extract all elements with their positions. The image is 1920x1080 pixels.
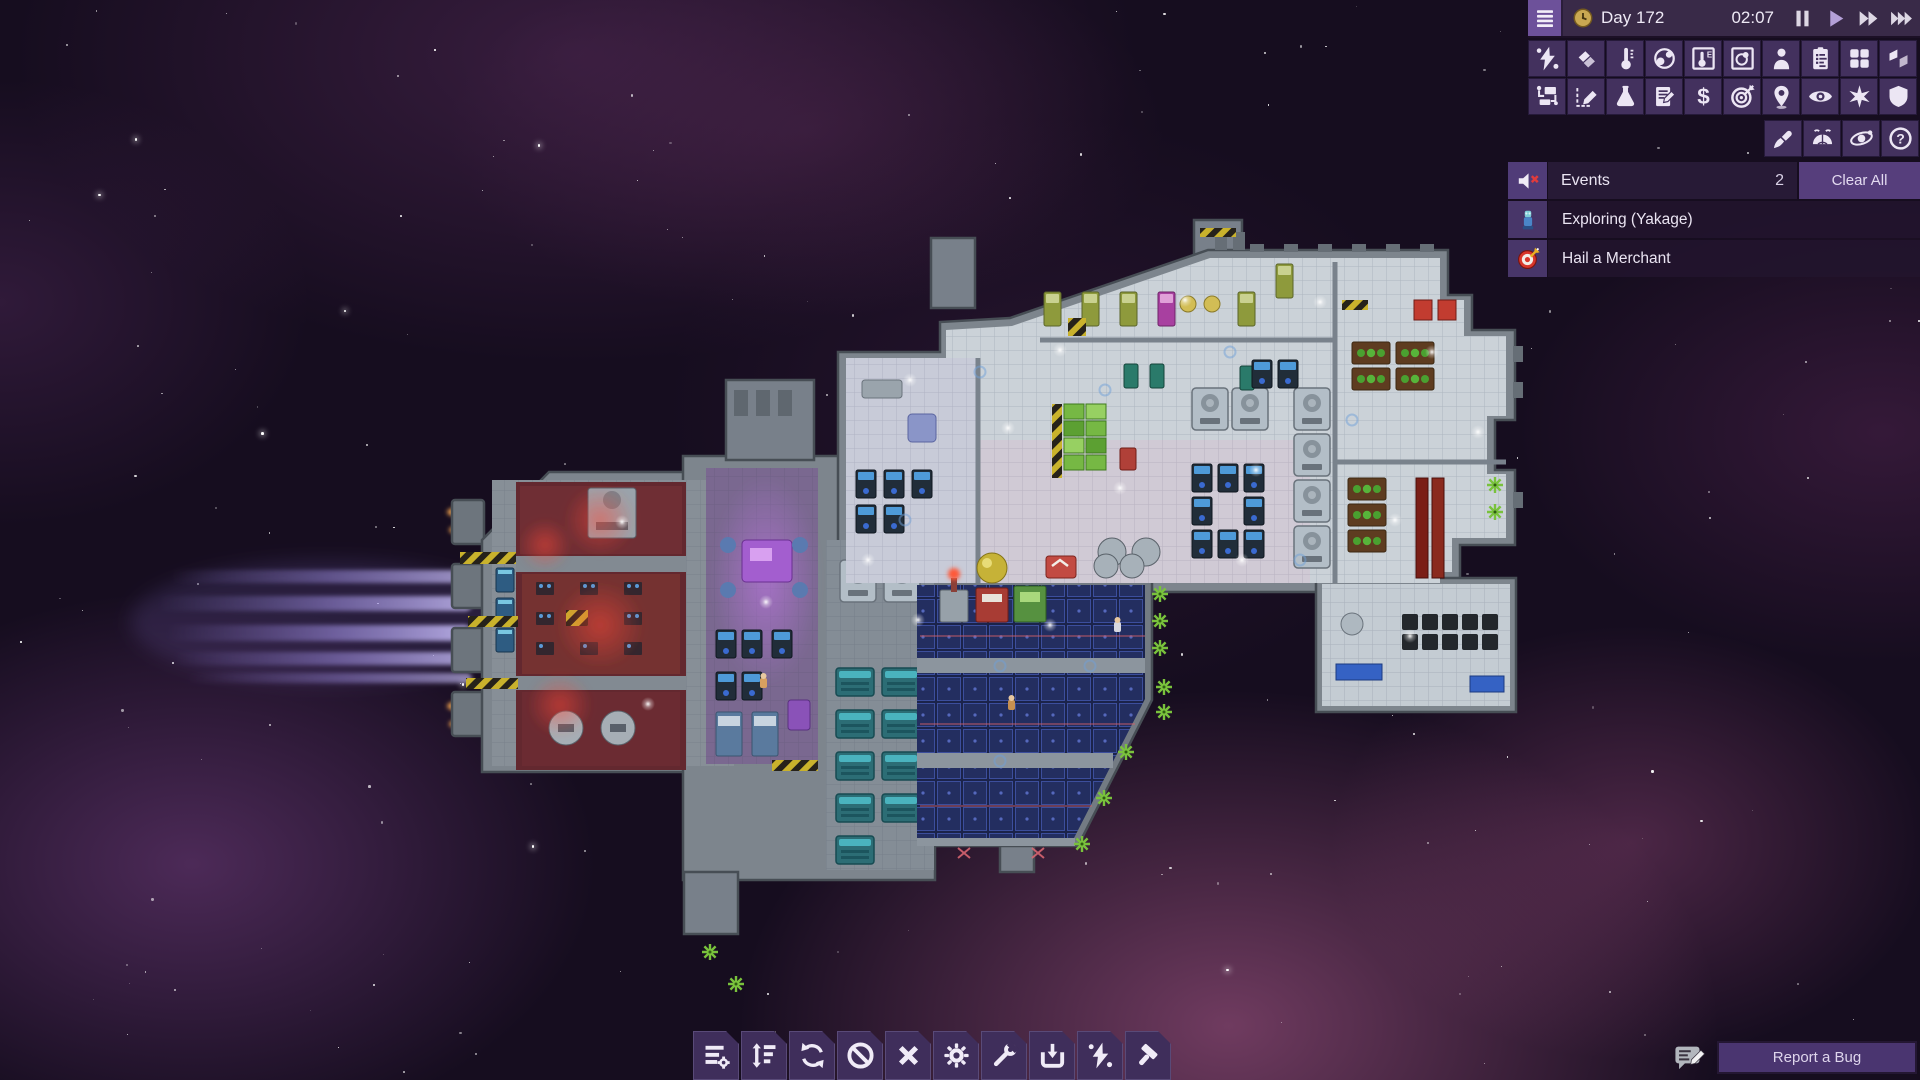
planet-dome-icon (1809, 125, 1836, 152)
ship-log-button[interactable] (1645, 78, 1683, 115)
date-time-display: Day 172 02:07 (1563, 0, 1786, 36)
fast-forward-icon (1856, 6, 1881, 31)
conditions-view-button[interactable] (1801, 40, 1839, 77)
game-screen: Day 172 02:07 E $ (0, 0, 1920, 1080)
report-bug-button[interactable]: Report a Bug (1717, 1041, 1917, 1074)
rooms-icon (1846, 45, 1873, 72)
events-title: Events (1561, 172, 1610, 190)
salvage-button[interactable] (1029, 1031, 1075, 1080)
reactor-rooms (460, 480, 734, 770)
pause-button[interactable] (1786, 0, 1819, 36)
floors-view-button[interactable] (1879, 40, 1917, 77)
orbit-icon (1848, 125, 1875, 152)
missions-button[interactable] (1723, 78, 1761, 115)
event-item: Exploring (Yakage) (1508, 201, 1920, 238)
lounge-room (1322, 584, 1510, 706)
fastest-forward-button[interactable] (1885, 0, 1918, 36)
salvage-box-icon (1037, 1040, 1068, 1071)
fast-forward-button[interactable] (1852, 0, 1885, 36)
draw-plan-button[interactable] (1567, 78, 1605, 115)
temperature-overlay-button[interactable]: E (1684, 40, 1722, 77)
svg-text:?: ? (1896, 131, 1905, 147)
hull-layers-view-button[interactable] (1567, 40, 1605, 77)
help-icon: ? (1887, 125, 1914, 152)
exploration-pod-icon (1515, 207, 1541, 233)
starburst-icon (1846, 83, 1873, 110)
trade-button[interactable]: $ (1684, 78, 1722, 115)
eye-icon (1807, 83, 1834, 110)
feedback-bubble-icon (1670, 1040, 1710, 1075)
dollar-icon: $ (1690, 83, 1717, 110)
customize-button[interactable] (1764, 120, 1802, 157)
event-item-icon-button[interactable] (1508, 201, 1547, 238)
temperature-view-button[interactable] (1606, 40, 1644, 77)
pencil-icon (1573, 83, 1600, 110)
view-toolbar-row3: ? (1764, 120, 1919, 157)
deconstruct-button[interactable] (1125, 1031, 1171, 1080)
forbid-icon (845, 1040, 876, 1071)
priorities-button[interactable] (741, 1031, 787, 1080)
play-icon (1823, 6, 1848, 31)
event-item-label[interactable]: Hail a Merchant (1548, 240, 1920, 277)
mute-events-button[interactable] (1508, 162, 1547, 199)
event-item-icon-button[interactable] (1508, 240, 1547, 277)
hammer-icon (1133, 1040, 1164, 1071)
svg-text:E: E (1706, 50, 1711, 59)
logistics-icon (1534, 83, 1561, 110)
orbit-view-button[interactable] (1842, 120, 1880, 157)
events-panel: Events 2 Clear All Exploring (Yakage) Ha… (1508, 162, 1920, 279)
bottom-toolbar (693, 1031, 1171, 1080)
top-bar: Day 172 02:07 (1528, 0, 1920, 38)
time-label: 02:07 (1731, 8, 1786, 28)
speed-controls (1786, 0, 1920, 36)
research-button[interactable] (1606, 78, 1644, 115)
planet-view-button[interactable] (1803, 120, 1841, 157)
system-view-button[interactable] (1840, 78, 1878, 115)
rotate-icon (797, 1040, 828, 1071)
rooms-view-button[interactable] (1840, 40, 1878, 77)
day-label: Day 172 (1601, 8, 1664, 28)
gas-overlay-icon (1729, 45, 1756, 72)
power-icon (1085, 1040, 1116, 1071)
wrench-icon (989, 1040, 1020, 1071)
crew-quarters (706, 468, 820, 771)
target-icon (1729, 83, 1756, 110)
crew-view-button[interactable] (1762, 40, 1800, 77)
clear-all-button[interactable]: Clear All (1799, 162, 1920, 199)
event-item: Hail a Merchant (1508, 240, 1920, 277)
hamburger-icon (1533, 6, 1557, 30)
power-view-button[interactable] (1528, 40, 1566, 77)
navigation-button[interactable] (1762, 78, 1800, 115)
thermometer-overlay-icon: E (1690, 45, 1717, 72)
rotate-button[interactable] (789, 1031, 835, 1080)
map-pin-icon (1768, 83, 1795, 110)
svg-text:$: $ (1697, 84, 1710, 109)
shield-icon (1885, 83, 1912, 110)
thermometer-icon (1612, 45, 1639, 72)
view-toolbar-row2: $ (1528, 78, 1917, 115)
flask-icon (1612, 83, 1639, 110)
crew-icon (1768, 45, 1795, 72)
priorities-icon (749, 1040, 780, 1071)
pause-icon (1790, 6, 1815, 31)
paintbrush-icon (1770, 125, 1797, 152)
gas-view-button[interactable] (1645, 40, 1683, 77)
view-toolbar-row1: E (1528, 40, 1917, 77)
report-bug-area: Report a Bug (1670, 1040, 1917, 1075)
fastest-forward-icon (1889, 6, 1914, 31)
power-view-icon (1534, 45, 1561, 72)
play-button[interactable] (1819, 0, 1852, 36)
floors-icon (1885, 45, 1912, 72)
help-button[interactable]: ? (1881, 120, 1919, 157)
power-button[interactable] (1077, 1031, 1123, 1080)
logistics-view-button[interactable] (1528, 78, 1566, 115)
clipboard-icon (1807, 45, 1834, 72)
forbid-button[interactable] (837, 1031, 883, 1080)
mission-target-icon (1515, 246, 1541, 272)
muted-speaker-icon (1515, 168, 1541, 194)
build-menu-icon (701, 1040, 732, 1071)
events-title-bar: Events 2 (1548, 162, 1797, 199)
gas-overlay-button[interactable] (1723, 40, 1761, 77)
cancel-icon (893, 1040, 924, 1071)
build-menu-button[interactable] (693, 1031, 739, 1080)
gas-icon (1651, 45, 1678, 72)
hull-layers-icon (1573, 45, 1600, 72)
cancel-button[interactable] (885, 1031, 931, 1080)
log-document-icon (1651, 83, 1678, 110)
shields-button[interactable] (1879, 78, 1917, 115)
event-item-label[interactable]: Exploring (Yakage) (1548, 201, 1920, 238)
clock-icon (1572, 7, 1594, 29)
menu-button[interactable] (1528, 0, 1563, 36)
observation-button[interactable] (1801, 78, 1839, 115)
gear-icon (941, 1040, 972, 1071)
events-count: 2 (1775, 172, 1784, 190)
settings-button[interactable] (933, 1031, 979, 1080)
repair-button[interactable] (981, 1031, 1027, 1080)
events-header: Events 2 Clear All (1508, 162, 1920, 199)
hangar-deck (917, 553, 1145, 858)
